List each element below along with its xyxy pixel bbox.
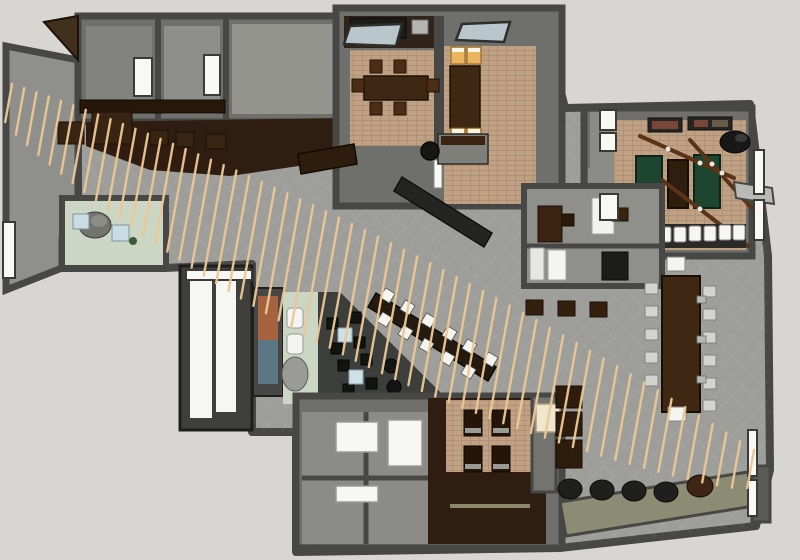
offices-block bbox=[524, 186, 662, 286]
dining-table-1 bbox=[364, 76, 428, 100]
wing-room-3-floor bbox=[232, 24, 334, 114]
wine-shelves bbox=[556, 386, 582, 468]
glazing-pane-1 bbox=[190, 276, 212, 418]
floor-plan-svg bbox=[0, 0, 800, 560]
floor-plan-render bbox=[0, 0, 800, 560]
glazing-pane-2 bbox=[216, 276, 236, 412]
bottom-center-block bbox=[296, 396, 562, 548]
booth-shelf-line bbox=[450, 504, 530, 508]
dining-table-2 bbox=[450, 66, 480, 128]
mural-art-bottom bbox=[258, 340, 278, 384]
corridor-shelf bbox=[80, 100, 225, 113]
office-stools bbox=[526, 300, 607, 317]
top-center-block bbox=[298, 8, 562, 206]
communal-table bbox=[662, 276, 700, 412]
